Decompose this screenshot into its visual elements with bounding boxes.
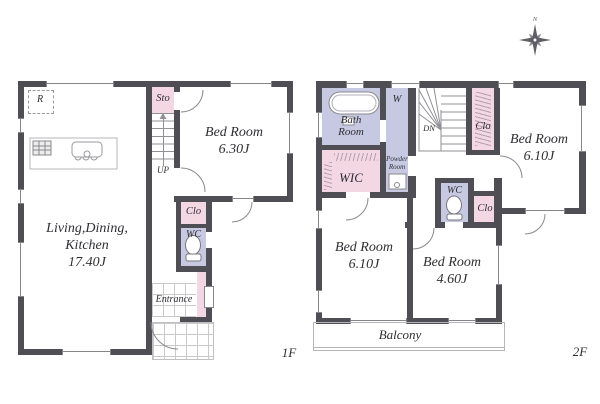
wic-hanger-rail (334, 153, 378, 161)
window (391, 81, 420, 88)
window (18, 118, 24, 133)
window (18, 189, 24, 204)
washer-label: W (386, 94, 408, 107)
bedroom-sw-door-opening (346, 192, 370, 198)
bath-line2: Room (322, 126, 380, 138)
powder-line1: Powder (383, 155, 411, 163)
casement-arc (525, 214, 545, 234)
bath-line1: Bath (322, 114, 380, 126)
bedroom-1f-size: 6.30J (174, 141, 294, 158)
powder-room-label: Powder Room (383, 155, 411, 171)
bedroom-se-size: 4.60J (392, 271, 512, 288)
door-arc (181, 168, 205, 192)
bath-door-opening (380, 120, 386, 142)
compass-icon: N (519, 16, 551, 56)
wall (181, 224, 206, 228)
window (316, 290, 322, 313)
window (232, 196, 254, 202)
porch-tile (152, 322, 214, 360)
stairs-down (419, 88, 466, 151)
window (62, 349, 111, 355)
fixtures-layer: N (0, 0, 600, 404)
bedroom-ne-name: Bed Room (479, 131, 599, 148)
storage-label: Sto (151, 93, 175, 106)
window (525, 208, 565, 214)
window (46, 81, 114, 87)
floor-1-label: 1F (277, 345, 301, 361)
ldk-line1: Living,Dining, (26, 220, 148, 237)
front-door (204, 286, 214, 308)
fridge-label: R (28, 94, 52, 106)
window (346, 81, 364, 88)
closet-1f-label: Clo (181, 206, 206, 219)
up-label: UP (152, 165, 174, 176)
wic-label: WIC (322, 170, 380, 186)
ldk-label: Living,Dining, Kitchen 17.40J (26, 220, 148, 271)
closet-2f-mid-label: Clo (472, 203, 498, 216)
window (18, 242, 24, 297)
floorplan-canvas: N R Living,Dining, Kitchen 17.40J Bed Ro… (0, 0, 600, 404)
wall (322, 145, 380, 150)
bedroom-ne-label: Bed Room 6.10J (479, 131, 599, 165)
dn-label: DN (419, 123, 439, 133)
balcony-rail-line (313, 350, 505, 351)
wc-2f-label: WC (441, 185, 468, 197)
door-arc (346, 198, 368, 220)
bedroom-ne-size: 6.10J (479, 148, 599, 165)
wall (408, 88, 416, 198)
wc-door-1f (206, 232, 212, 248)
bedroom-se-name: Bed Room (392, 254, 512, 271)
casement-arc (232, 202, 252, 222)
floor-2-label: 2F (568, 344, 592, 360)
bedroom-1f-name: Bed Room (174, 124, 294, 141)
powder-line2: Room (383, 163, 411, 171)
wall (474, 191, 500, 196)
ldk-size: 17.40J (26, 254, 148, 271)
wc-door-2f (445, 222, 463, 228)
kitchen-counter (30, 138, 117, 169)
bedroom-se-door-opening (413, 222, 435, 228)
balcony-label: Balcony (340, 327, 460, 343)
window (230, 81, 272, 87)
balcony-rail-side (504, 346, 505, 351)
stairs-up-centerline (163, 113, 164, 166)
balcony-rail-side (313, 346, 314, 351)
window (316, 210, 322, 229)
bath-room-label: Bath Room (322, 114, 380, 138)
door-arc (181, 90, 203, 112)
bedroom-se-label: Bed Room 4.60J (392, 254, 512, 288)
wc-1f-label: WC (181, 229, 206, 241)
bedroom-1f-label: Bed Room 6.30J (174, 124, 294, 158)
window (498, 81, 514, 88)
entrance-label: Entrance (150, 294, 198, 306)
powder-room-fill (386, 113, 408, 192)
compass-north-label: N (532, 16, 538, 23)
ldk-line2: Kitchen (26, 237, 148, 254)
wall (180, 317, 212, 322)
